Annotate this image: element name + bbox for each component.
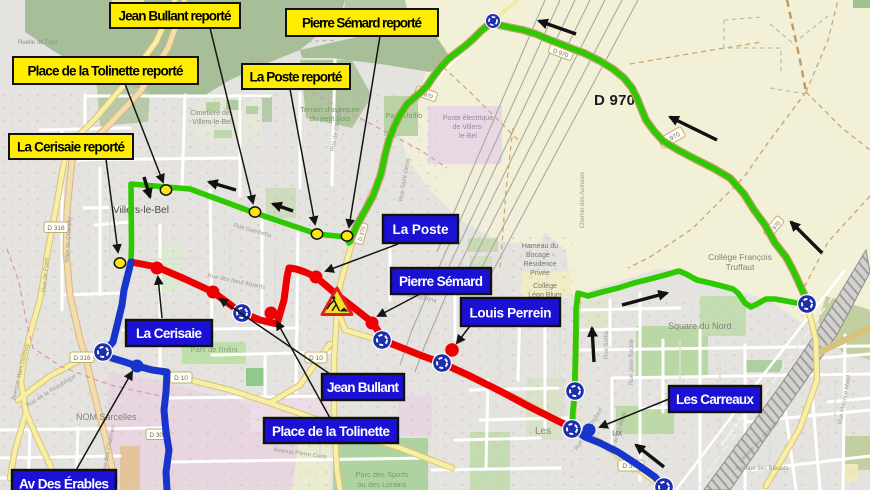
svg-text:Poste électrique: Poste électrique (443, 115, 493, 122)
svg-text:D 970: D 970 (594, 92, 635, 109)
svg-text:Ruelle du Trou: Ruelle du Trou (18, 40, 57, 46)
svg-text:Villers-le-Bel: Villers-le-Bel (192, 119, 232, 126)
svg-text:Place de la Tolinette reporté: Place de la Tolinette reporté (28, 64, 184, 79)
svg-text:La Cerisaie: La Cerisaie (136, 326, 202, 341)
svg-text:La Poste reporté: La Poste reporté (250, 70, 343, 85)
svg-text:Avenue des Bleuets: Avenue des Bleuets (735, 466, 788, 472)
svg-text:de Villers-: de Villers- (453, 124, 485, 131)
svg-text:Truffaut: Truffaut (726, 262, 755, 272)
svg-text:Privée: Privée (530, 270, 550, 277)
svg-text:Jean Bullant: Jean Bullant (327, 380, 400, 395)
svg-text:Place de la Tolinette: Place de la Tolinette (272, 424, 390, 439)
svg-text:Terrain d'aventure: Terrain d'aventure (300, 105, 360, 114)
svg-text:ou des Lorains: ou des Lorains (357, 480, 406, 489)
svg-text:D 316: D 316 (47, 225, 65, 232)
svg-text:Collège: Collège (533, 283, 557, 290)
svg-text:D 10: D 10 (174, 375, 188, 382)
svg-text:Villers-le-Bel: Villers-le-Bel (113, 205, 169, 216)
svg-text:Jean Bullant reporté: Jean Bullant reporté (119, 9, 232, 24)
svg-text:Résidence: Résidence (523, 261, 556, 268)
svg-text:Rue Jean Racine: Rue Jean Racine (629, 338, 635, 385)
svg-text:D 316: D 316 (73, 355, 91, 362)
svg-text:Hameau du: Hameau du (522, 243, 558, 250)
svg-text:Av Des Érables: Av Des Érables (19, 477, 109, 490)
svg-text:Louis Perrein: Louis Perrein (470, 306, 552, 321)
svg-text:La Poste: La Poste (393, 222, 449, 237)
svg-text:Collège François: Collège François (708, 252, 772, 262)
svg-text:le-Bel: le-Bel (459, 133, 477, 140)
svg-text:du petit bois: du petit bois (310, 114, 351, 123)
svg-text:Chemin des Aulnaies: Chemin des Aulnaies (580, 172, 586, 228)
svg-text:Bocage -: Bocage - (526, 252, 555, 259)
svg-text:Les: Les (535, 426, 551, 437)
svg-text:La Cerisaie reporté: La Cerisaie reporté (17, 140, 125, 155)
svg-text:Parc des Sports: Parc des Sports (355, 470, 409, 479)
svg-text:Les Carreaux: Les Carreaux (676, 392, 754, 407)
svg-text:Square du Nord: Square du Nord (668, 321, 732, 331)
svg-text:Cimetière de: Cimetière de (190, 110, 230, 117)
svg-text:Rue Sottia: Rue Sottia (604, 330, 610, 359)
svg-text:Pierre Sémard: Pierre Sémard (399, 274, 483, 289)
svg-text:Pierre Sémard reporté: Pierre Sémard reporté (302, 16, 422, 31)
